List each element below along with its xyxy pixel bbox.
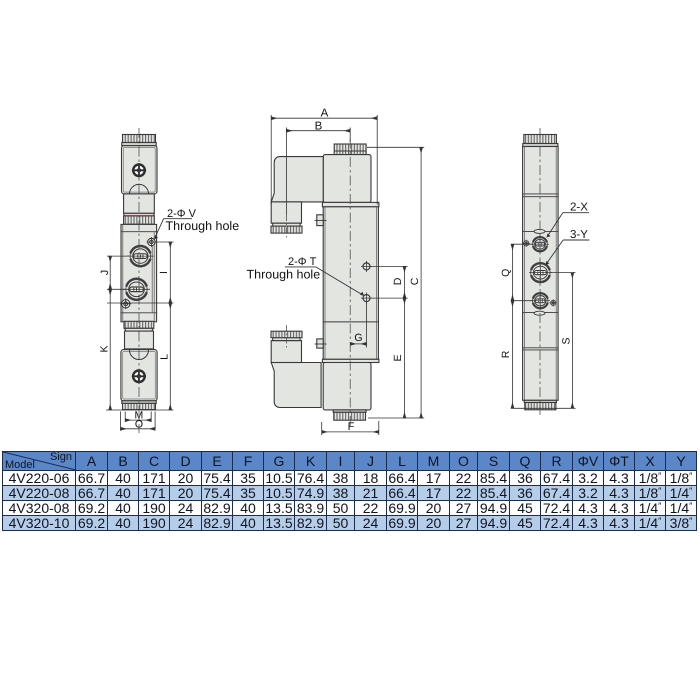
svg-text:K: K [99,345,111,352]
svg-text:I: I [158,271,170,274]
svg-text:R: R [500,350,512,358]
svg-text:D: D [392,277,404,285]
svg-text:G: G [354,332,362,344]
svg-text:E: E [392,354,404,361]
svg-text:3-Y: 3-Y [570,229,588,241]
svg-text:O: O [135,418,143,430]
svg-text:B: B [315,120,323,132]
svg-text:2-Φ V: 2-Φ V [167,208,197,220]
svg-text:A: A [321,108,329,120]
svg-text:S: S [560,337,572,344]
svg-text:2-Φ T: 2-Φ T [288,256,317,268]
svg-text:J: J [99,270,111,275]
svg-text:L: L [158,354,170,360]
svg-text:Through hole: Through hole [247,267,321,281]
svg-text:C: C [409,277,421,285]
svg-text:F: F [348,421,355,433]
svg-text:2-X: 2-X [570,202,588,214]
svg-text:Through hole: Through hole [166,219,240,233]
svg-text:Q: Q [500,269,512,277]
